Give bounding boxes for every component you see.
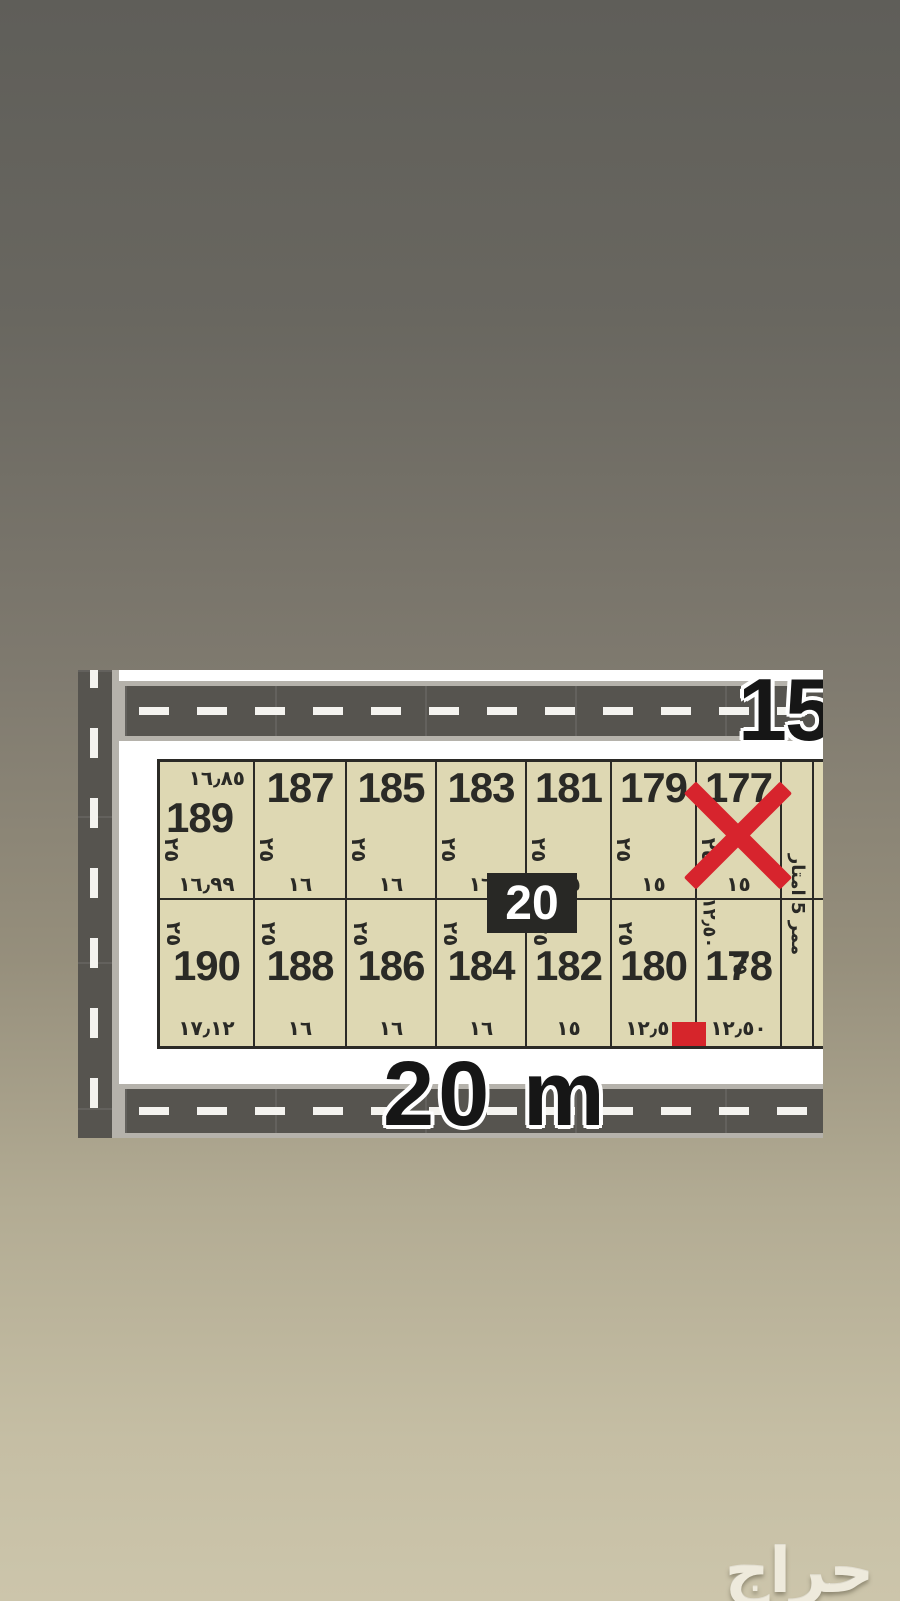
- plot-number: 187: [255, 764, 345, 812]
- plot-187: 187٢٥١٦: [255, 762, 347, 898]
- walkway-label: ممر 5 امتار: [788, 853, 809, 954]
- plot-side-dim: ٢٥: [614, 838, 634, 862]
- plot-number: 186: [347, 942, 435, 990]
- plot-side-dim: ٢٥: [162, 838, 182, 862]
- photo-background: 15 20 m ١٦٫٨٥189٢٥١٦٫٩٩187٢٥١٦185٢٥١٦183…: [0, 0, 900, 1601]
- plot-map-image: 15 20 m ١٦٫٨٥189٢٥١٦٫٩٩187٢٥١٦185٢٥١٦183…: [78, 670, 823, 1138]
- plot-number: 185: [347, 764, 435, 812]
- plot-bottom-dim: ١٦٫٩٩: [160, 874, 253, 894]
- plot-side-dim: ٢٥: [351, 922, 371, 946]
- road-top: [119, 681, 823, 741]
- plot-side-dim: ٢٥: [259, 922, 279, 946]
- plot-side-dim: ٢٥: [439, 838, 459, 862]
- cut-plot-sliver: [814, 762, 823, 898]
- plot-bottom-dim: ١٦: [347, 1018, 435, 1038]
- plot-side-dim: ٢٥: [257, 838, 277, 862]
- plot-side-dim: ٢٥: [616, 922, 636, 946]
- plot-bottom-dim: ١٥: [612, 874, 695, 894]
- plot-bottom-dim: ١٢٫٥٠: [697, 1018, 780, 1038]
- plot-side-dim: ٢٥: [731, 893, 751, 976]
- road-width-label-20m: 20 m: [383, 1048, 609, 1138]
- plot-number: 182: [527, 942, 610, 990]
- road-width-label-15: 15: [738, 670, 823, 754]
- plot-top-dim: ١٦٫٨٥: [189, 768, 245, 788]
- plot-side-dim: ٢٥: [441, 922, 461, 946]
- plot-bottom-dim: ١٦: [437, 1018, 525, 1038]
- road-center-dashes: [139, 707, 823, 715]
- plot-bottom-dim: ١٦: [347, 874, 435, 894]
- plot-178: 178١٢٫٥٠٢٥١٢٫٥٠: [697, 900, 782, 1046]
- plot-185: 185٢٥١٦: [347, 762, 437, 898]
- plot-bottom-dim: ١٥: [527, 1018, 610, 1038]
- plot-number: 183: [437, 764, 525, 812]
- plot-bottom-dim: ١٦: [255, 1018, 345, 1038]
- plot-number: 190: [160, 942, 253, 990]
- plot-side-dim: ٢٥: [164, 922, 184, 946]
- plot-left-dim: ١٢٫٥٠: [699, 898, 717, 949]
- plot-side-dim: ٢٥: [349, 838, 369, 862]
- plot-bottom-dim: ١٧٫١٢: [160, 1018, 253, 1038]
- plot-number: 180: [612, 942, 695, 990]
- plot-number: 184: [437, 942, 525, 990]
- plot-bottom-dim: ١٦: [255, 874, 345, 894]
- sold-x-mark-icon: [688, 786, 788, 886]
- plot-189: ١٦٫٨٥189٢٥١٦٫٩٩: [160, 762, 255, 898]
- plot-186: 186٢٥١٦: [347, 900, 437, 1046]
- plot-190: 190٢٥١٧٫١٢: [160, 900, 255, 1046]
- plot-side-dim: ٢٥: [529, 838, 549, 862]
- street-width-badge: 20: [487, 873, 577, 933]
- plot-number: 181: [527, 764, 610, 812]
- cut-plot-sliver: [814, 900, 823, 1046]
- plot-188: 188٢٥١٦: [255, 900, 347, 1046]
- plot-number: 189: [166, 794, 233, 842]
- road-center-dashes: [90, 670, 98, 1138]
- road-vertical: [78, 670, 119, 1138]
- haraj-watermark: حراج: [725, 1534, 874, 1601]
- plot-number: 179: [612, 764, 695, 812]
- plot-number: 188: [255, 942, 345, 990]
- red-marker: [672, 1022, 706, 1046]
